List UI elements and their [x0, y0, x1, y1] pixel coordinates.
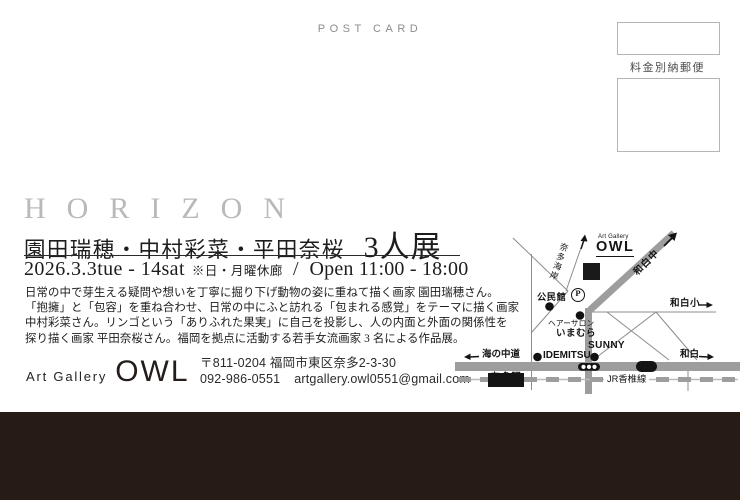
description-line: 中村彩菜さん。リンゴという「ありふれた果実」に自己を投影し、人の内面と外面の関係…: [25, 316, 465, 331]
gallery-logo-prefix: Art Gallery: [26, 369, 107, 384]
description-line: 日常の中で芽生える疑問や想いを丁寧に掘り下げ動物の姿に重ねて描く画家 園田瑞穂さ…: [25, 286, 465, 301]
description-line: 探り描く画家 平田奈桜さん。福岡を拠点に活動する若手女流画家 3 名による作品展…: [25, 332, 465, 347]
nata-station-badge: 奈多駅: [488, 373, 524, 387]
gallery-logo-name: OWL: [115, 355, 189, 389]
map-wajiro-elementary-label: 和白小: [670, 299, 700, 309]
gallery-phone-email: 092-986-0551artgallery.owl0551@gmail.com: [200, 372, 470, 388]
gallery-building-marker: [583, 263, 600, 280]
jr-line-label: JR香椎線: [604, 375, 649, 384]
gallery-email: artgallery.owl0551@gmail.com: [294, 372, 470, 386]
map-sunny-label: SUNNY: [588, 341, 625, 351]
map-hair-salon-label-1: ヘアーサロン: [548, 320, 594, 328]
map-wajiro-label: 和白: [680, 350, 699, 360]
postcard: POST CARD 料金別納郵便 HORIZON 園田瑞穂・中村彩菜・平田奈桜 …: [0, 0, 740, 500]
wajiro-arrow: [699, 357, 708, 358]
description-line: 「抱擁」と「包容」を重ね合わせ、日常の中にふと訪れる「包まれる感覚」をテーマに描…: [25, 301, 465, 316]
postage-mark-box: [617, 78, 720, 152]
map-hair-salon-label-2: いまむら: [556, 329, 596, 339]
parking-icon: P: [571, 288, 585, 302]
gallery-logo: Art Gallery OWL: [26, 355, 190, 389]
exhibition-description: 日常の中で芽生える疑問や想いを丁寧に掘り下げ動物の姿に重ねて描く画家 園田瑞穂さ…: [25, 286, 465, 347]
route-59-badge: 59: [636, 361, 657, 372]
map-community-center-label: 公民館: [537, 293, 566, 302]
map-uminonakamichi-label: 海の中道: [482, 350, 520, 360]
postage-paid-label: 料金別納郵便: [617, 59, 718, 75]
gallery-address: 〒811-0204 福岡市東区奈多2-3-30: [200, 356, 470, 372]
title-divider: [24, 255, 460, 256]
uminonakamichi-arrow: [470, 357, 479, 358]
bus-stop-marker: [578, 363, 600, 371]
gallery-phone: 092-986-0551: [200, 372, 280, 386]
stamp-box: [617, 22, 720, 55]
open-hours: Open 11:00 - 18:00: [310, 258, 469, 281]
closed-days-note: ※日・月曜休廊: [192, 260, 283, 279]
date-row: 2026.3.3tue - 14sat ※日・月曜休廊 / Open 11:00…: [24, 258, 468, 281]
map-gallery-label: OWL: [596, 240, 634, 257]
footer-bar: https://www.galleryowl.com アクセス ・JR香椎線奈多…: [0, 412, 740, 500]
beach-road-arrow: [581, 240, 584, 249]
date-separator: /: [293, 258, 299, 281]
map-idemitsu-label: IDEMITSU: [543, 351, 591, 361]
exhibition-dates: 2026.3.3tue - 14sat: [24, 258, 185, 281]
access-map: Art Gallery OWL 奈多海岸 和白中 P 公民館 ヘアーサロン いま…: [455, 228, 740, 400]
exhibition-title: HORIZON: [24, 192, 306, 226]
gallery-contact: 〒811-0204 福岡市東区奈多2-3-30 092-986-0551artg…: [200, 356, 470, 387]
